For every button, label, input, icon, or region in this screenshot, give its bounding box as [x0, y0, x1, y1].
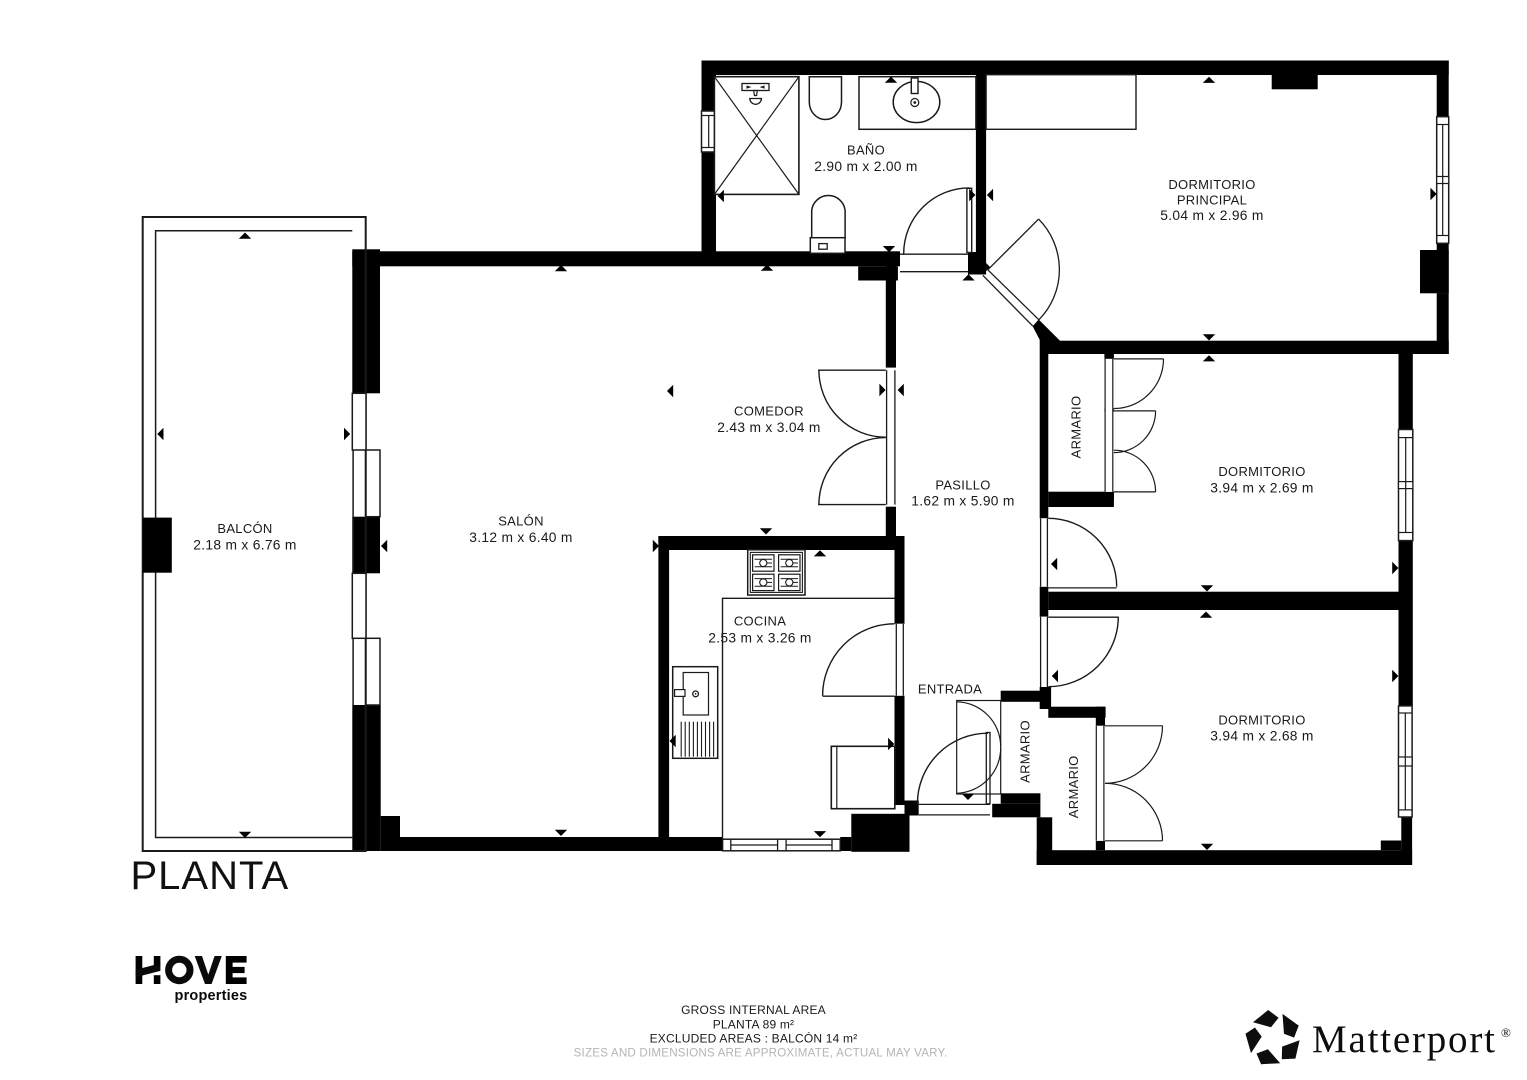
svg-text:SIZES AND DIMENSIONS ARE APPRO: SIZES AND DIMENSIONS ARE APPROXIMATE, AC… — [574, 1046, 948, 1059]
svg-text:PLANTA: PLANTA — [131, 854, 290, 898]
svg-text:SALÓN: SALÓN — [498, 514, 544, 529]
svg-text:BAÑO: BAÑO — [847, 143, 885, 158]
svg-text:ENTRADA: ENTRADA — [918, 682, 982, 697]
svg-text:ARMARIO: ARMARIO — [1066, 755, 1081, 818]
svg-text:ARMARIO: ARMARIO — [1069, 396, 1084, 459]
svg-text:ARMARIO: ARMARIO — [1018, 720, 1033, 783]
svg-text:EXCLUDED AREAS : BALCÓN 14 m²: EXCLUDED AREAS : BALCÓN 14 m² — [650, 1031, 858, 1046]
svg-text:COMEDOR: COMEDOR — [734, 404, 804, 419]
svg-text:PRINCIPAL: PRINCIPAL — [1177, 193, 1247, 208]
svg-text:5.04 m x 2.96 m: 5.04 m x 2.96 m — [1160, 208, 1263, 223]
svg-text:2.43 m x 3.04 m: 2.43 m x 3.04 m — [717, 420, 820, 435]
svg-text:PASILLO: PASILLO — [935, 478, 990, 493]
svg-text:®: ® — [1501, 1025, 1511, 1040]
svg-text:3.12 m x 6.40 m: 3.12 m x 6.40 m — [469, 530, 572, 545]
svg-text:GROSS INTERNAL AREA: GROSS INTERNAL AREA — [681, 1003, 826, 1017]
svg-text:PLANTA 89 m²: PLANTA 89 m² — [713, 1017, 795, 1031]
svg-text:2.53 m x 3.26 m: 2.53 m x 3.26 m — [708, 630, 811, 645]
svg-text:properties: properties — [175, 988, 248, 1004]
svg-text:DORMITORIO: DORMITORIO — [1218, 464, 1305, 479]
svg-text:2.18 m x 6.76 m: 2.18 m x 6.76 m — [193, 538, 296, 553]
svg-text:Matterport: Matterport — [1312, 1018, 1497, 1061]
svg-text:1.62 m x 5.90 m: 1.62 m x 5.90 m — [911, 494, 1014, 509]
svg-text:3.94 m x 2.69 m: 3.94 m x 2.69 m — [1210, 481, 1313, 496]
svg-text:DORMITORIO: DORMITORIO — [1168, 177, 1255, 192]
svg-text:2.90 m x 2.00 m: 2.90 m x 2.00 m — [814, 159, 917, 174]
svg-text:COCINA: COCINA — [734, 613, 786, 628]
svg-text:3.94 m x 2.68 m: 3.94 m x 2.68 m — [1210, 729, 1313, 744]
svg-text:BALCÓN: BALCÓN — [217, 521, 272, 536]
svg-text:DORMITORIO: DORMITORIO — [1218, 713, 1305, 728]
